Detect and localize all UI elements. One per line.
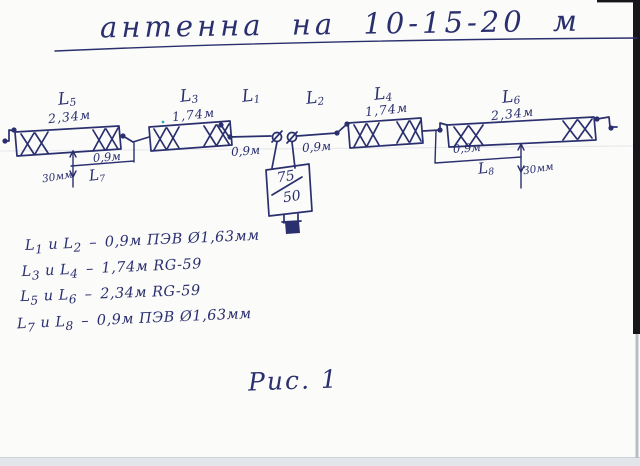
junction-l5-l3 <box>120 133 149 142</box>
junction-l4-l6 <box>423 123 447 133</box>
element-label-l3: L3 <box>179 87 199 107</box>
scanned-page: антенна на 10-15-20 м L5 2,34м L3 1,74м … <box>0 0 640 466</box>
balun-top-value: 75 <box>276 169 296 186</box>
wire-l1 <box>218 122 271 139</box>
legend-item: L7 и L8 – 0,9м ПЭВ Ø1,63мм <box>17 305 262 335</box>
wire-length-right: 0,9м <box>302 140 332 154</box>
wire-l2 <box>297 121 350 136</box>
element-label-l2: L2 <box>305 89 325 109</box>
trap-marks-right <box>93 128 118 151</box>
element-label-l7: L7 <box>88 167 106 185</box>
element-l4 <box>348 118 423 148</box>
trap-marks-left <box>354 123 379 147</box>
right-support <box>594 116 617 130</box>
trap-marks-left <box>154 127 179 150</box>
diagram-title: антенна на 10-15-20 м <box>100 7 581 43</box>
feed-insulators <box>272 131 297 143</box>
legend-item: L3 и L4 – 1,74м RG-59 <box>21 254 260 283</box>
trap-marks-right <box>563 119 592 140</box>
l8-length: 0,9м <box>453 142 482 155</box>
scan-artifacts <box>0 0 640 466</box>
balun-bottom-value: 50 <box>282 189 302 206</box>
trap-marks-right <box>397 120 421 143</box>
trap-marks-left <box>21 132 48 155</box>
element-label-l1: L1 <box>241 87 261 107</box>
legend-item: L5 и L6 – 2,34м RG-59 <box>20 281 261 308</box>
trap-marks-right <box>204 124 229 146</box>
l7-length: 0,9м <box>93 151 122 164</box>
figure-caption: Рис. 1 <box>248 366 340 394</box>
coax-connector <box>282 214 301 234</box>
element-label-l8: L8 <box>477 160 495 178</box>
pen-speck <box>162 121 165 124</box>
feed-lines <box>272 142 295 168</box>
element-label-l5: L5 <box>57 90 77 110</box>
wire-length-left: 0,9м <box>231 144 261 158</box>
antenna-sketch <box>0 0 640 466</box>
legend: L1 и L2 – 0,9м ПЭВ Ø1,63ммL3 и L4 – 1,74… <box>15 230 263 340</box>
